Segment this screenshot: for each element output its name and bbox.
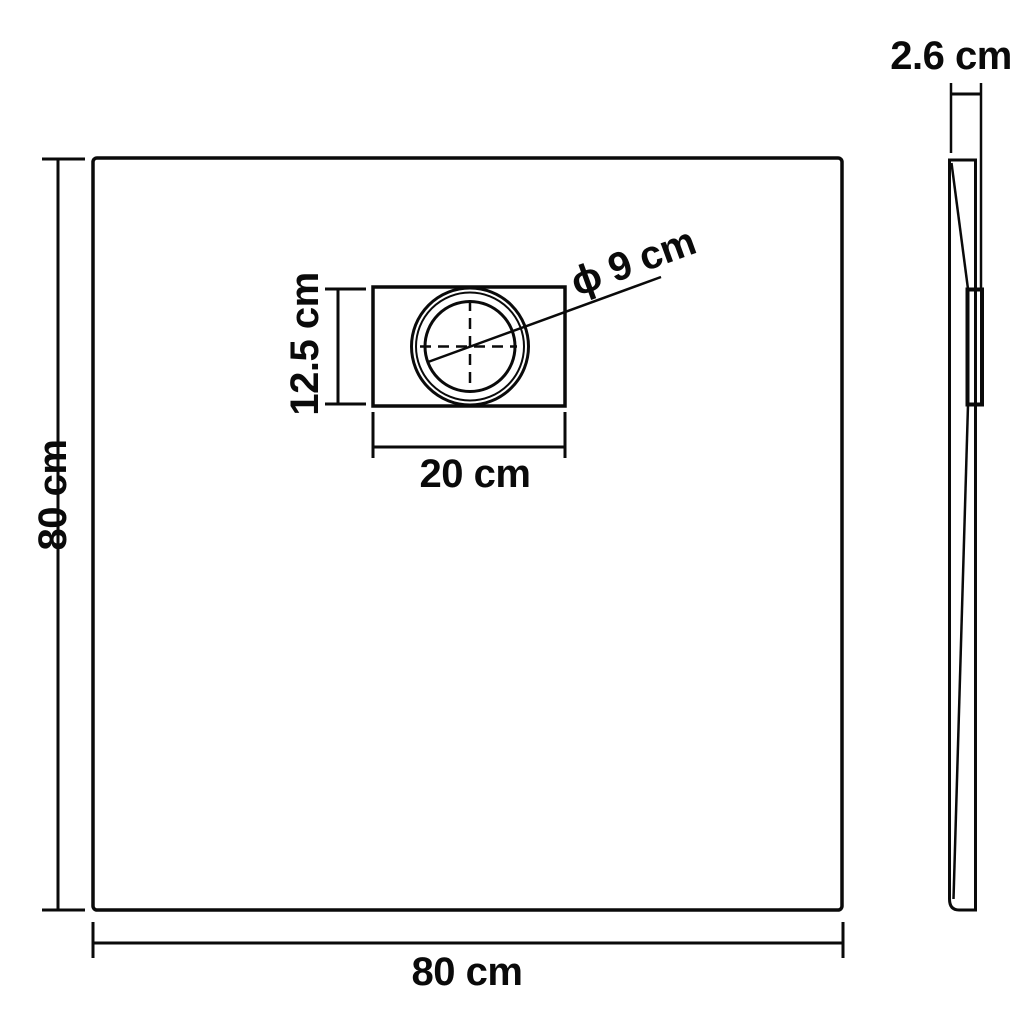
side-profile: [950, 83, 983, 910]
side-profile-slope-lower: [954, 405, 969, 899]
tray-height-label: 80 cm: [31, 395, 75, 595]
drain-width-label: 20 cm: [375, 452, 575, 496]
side-profile-slope-upper: [952, 163, 969, 289]
thickness-label: 2.6 cm: [851, 34, 1024, 78]
side-profile-outline: [950, 160, 976, 910]
tray-outline: [93, 158, 842, 910]
technical-drawing: [0, 0, 1024, 1024]
diagram-canvas: 80 cm 12.5 cm 20 cm 80 cm 2.6 cm ϕ 9 cm: [0, 0, 1024, 1024]
tray-width-label: 80 cm: [367, 950, 567, 994]
drain-height-label: 12.5 cm: [283, 244, 327, 444]
dimension-drain-height: [325, 289, 366, 404]
